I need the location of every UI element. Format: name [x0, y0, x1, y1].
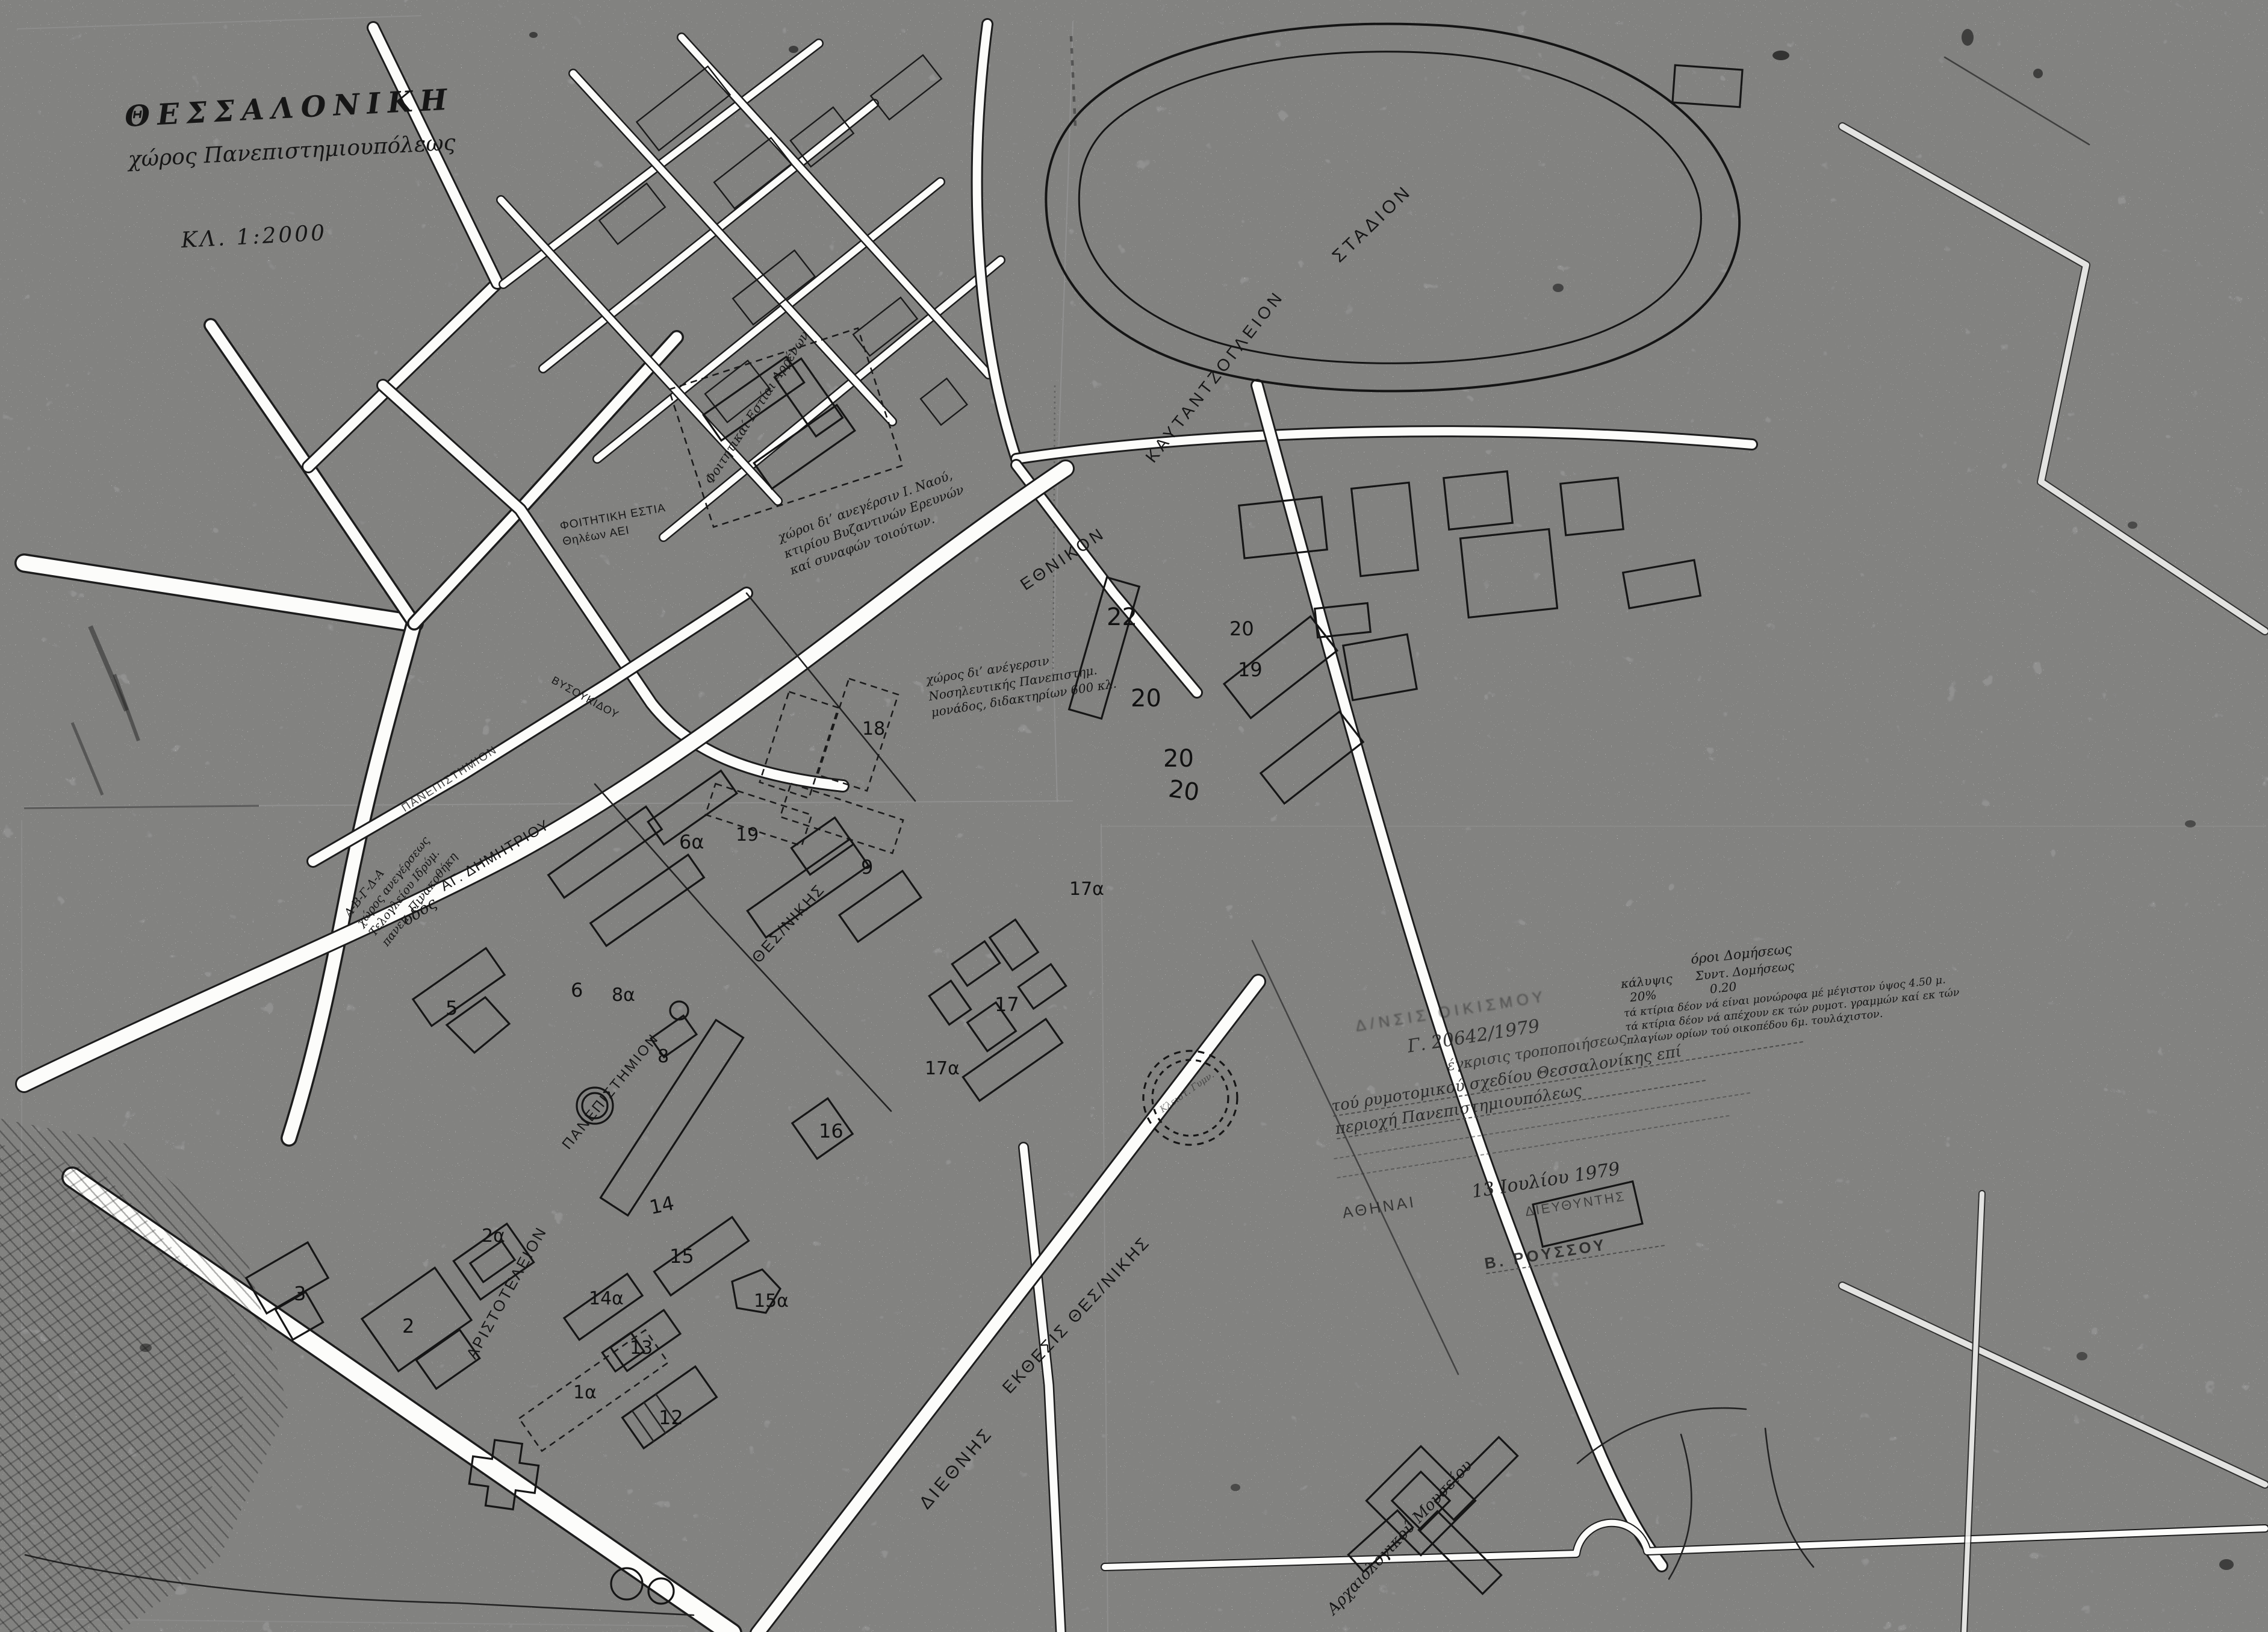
building-number: 1α — [573, 1384, 597, 1402]
stamp-city: ΑΘΗΝΑΙ — [1341, 1192, 1417, 1222]
building-number: 2α — [482, 1227, 505, 1245]
building-number: 19 — [736, 826, 759, 844]
building-number: 8α — [612, 986, 635, 1004]
building-number: 14 — [648, 1194, 676, 1218]
building-number: 9 — [861, 858, 873, 877]
building-number: 16 — [819, 1121, 844, 1141]
map-canvas: ΘΕΣΣΑΛΟΝΙΚΗ χώρος Πανεπιστημιουπόλεως ΚΛ… — [0, 0, 2268, 1632]
building-number: 17α — [1069, 880, 1104, 899]
building-number: 2 — [402, 1316, 414, 1336]
map-linework — [0, 0, 2268, 1632]
building-number: 17α — [925, 1060, 960, 1078]
building-number: 19 — [1238, 660, 1263, 679]
building-number: 20 — [1163, 747, 1194, 771]
building-number: 12 — [659, 1408, 683, 1427]
building-number: 5 — [446, 998, 458, 1018]
building-number: 17 — [995, 995, 1019, 1014]
building-number: 22 — [1107, 605, 1137, 629]
building-number: 15 — [670, 1247, 694, 1266]
building-number: 13 — [630, 1339, 653, 1357]
building-number: 20 — [1167, 777, 1201, 805]
building-number: 15α — [754, 1292, 789, 1310]
building-number: 20 — [1229, 619, 1254, 638]
building-number: 3 — [294, 1284, 306, 1303]
building-number: 6α — [679, 832, 704, 852]
building-number: 8 — [657, 1048, 669, 1066]
photocopy-noise — [0, 0, 2268, 1632]
building-number: 14α — [589, 1290, 624, 1308]
building-number: 6 — [571, 980, 583, 1000]
building-number: 18 — [862, 720, 885, 738]
scanned-map-page: { "title": { "city": "ΘΕΣΣΑΛΟΝΙΚΗ", "sub… — [0, 0, 2268, 1632]
building-number: 20 — [1131, 687, 1161, 711]
